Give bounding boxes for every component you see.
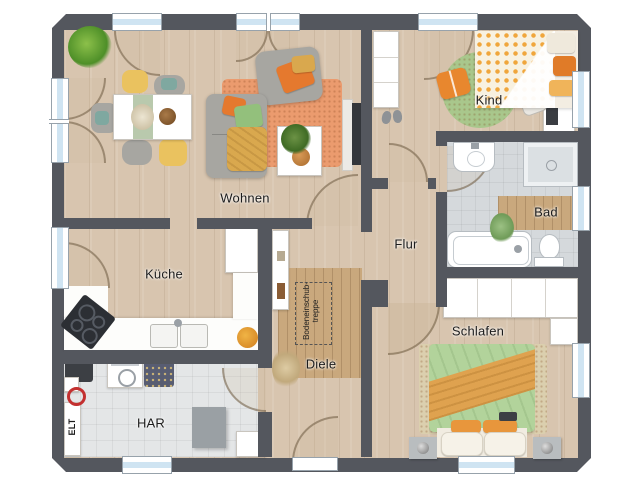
dresser — [550, 318, 578, 345]
room-label-wohnen: Wohnen — [220, 191, 269, 206]
fruit-bowl — [237, 327, 258, 348]
wall — [361, 178, 388, 189]
dining-table — [113, 94, 192, 140]
kitchen-counter-right — [233, 273, 258, 319]
room-label-schlafen: Schlafen — [452, 324, 504, 339]
window — [122, 456, 172, 474]
room-label-kind: Kind — [476, 93, 503, 108]
window — [51, 227, 69, 289]
wall — [436, 267, 578, 278]
floor-plan: Wohnen Kind Bad Flur Küche Diele Schlafe… — [0, 0, 640, 480]
slipper — [392, 110, 402, 124]
attic-stairs-line2: treppe — [311, 282, 320, 340]
room-label-bad: Bad — [534, 205, 558, 220]
wall — [258, 227, 272, 368]
shower — [523, 142, 578, 187]
window — [112, 13, 162, 31]
kind-wardrobe — [373, 31, 399, 108]
dining-chair — [159, 139, 187, 166]
fridge — [225, 227, 258, 273]
wall — [64, 350, 258, 364]
red-hose-coil — [67, 387, 86, 406]
bathtub — [447, 231, 532, 268]
label-elt: ELT — [67, 419, 77, 436]
window — [572, 186, 590, 231]
potted-plant — [68, 26, 112, 68]
wall — [436, 131, 578, 142]
toilet — [539, 234, 560, 259]
window — [572, 343, 590, 398]
hall-shelf — [272, 230, 289, 310]
storage-box — [192, 407, 226, 448]
room-label-diele: Diele — [306, 357, 337, 372]
wall — [428, 178, 436, 189]
label-attic-stairs: Bodeneinschub- treppe — [302, 282, 320, 340]
room-label-har: HAR — [137, 416, 165, 431]
wall — [64, 218, 170, 229]
wall — [436, 192, 447, 307]
dining-chair — [122, 70, 148, 93]
wall — [361, 295, 372, 457]
nightstand — [533, 437, 561, 459]
dried-plant — [272, 347, 300, 389]
window — [51, 78, 69, 163]
wall — [361, 30, 372, 232]
wall — [197, 218, 312, 229]
kitchen-sink — [150, 324, 208, 348]
tv — [352, 103, 361, 165]
room-label-kueche: Küche — [145, 267, 183, 282]
bathroom-sink — [453, 142, 495, 172]
table-plant — [281, 124, 311, 154]
window — [418, 13, 478, 31]
entry-door — [292, 457, 338, 471]
window — [236, 13, 300, 31]
green-towel — [490, 213, 514, 243]
toilet-tank — [534, 257, 564, 267]
window — [458, 456, 515, 474]
attic-stairs-line1: Bodeneinschub- — [302, 282, 311, 340]
double-bed — [429, 344, 535, 457]
window — [572, 71, 590, 128]
wall — [436, 131, 447, 146]
schlafen-wardrobe — [443, 278, 578, 318]
wall — [258, 412, 272, 457]
sofa — [206, 94, 267, 178]
dining-chair — [122, 140, 152, 165]
room-label-flur: Flur — [394, 237, 417, 252]
